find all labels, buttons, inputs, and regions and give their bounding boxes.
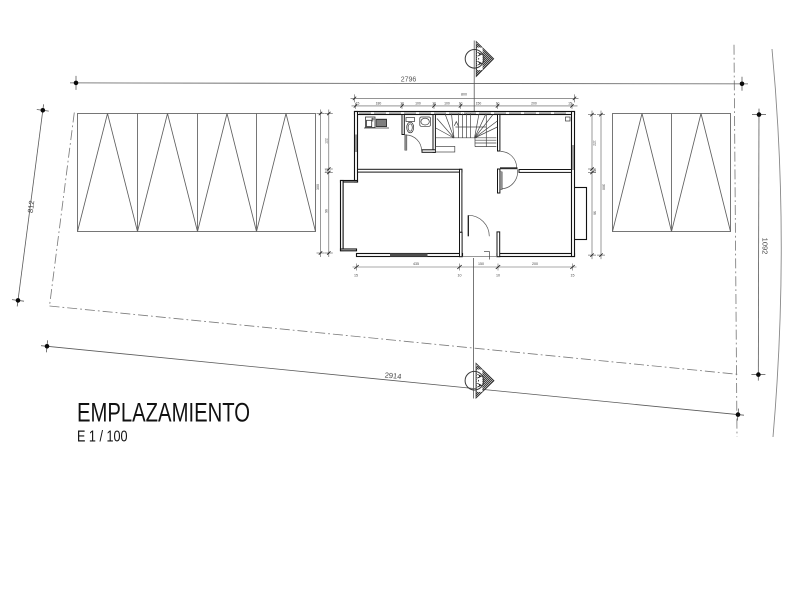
svg-text:2914: 2914 <box>384 371 401 382</box>
svg-text:10: 10 <box>324 169 328 173</box>
svg-text:180: 180 <box>376 102 382 106</box>
svg-text:435: 435 <box>413 262 419 266</box>
svg-text:122: 122 <box>324 138 328 144</box>
svg-text:800: 800 <box>461 92 467 96</box>
svg-text:15: 15 <box>354 274 358 278</box>
svg-text:1092: 1092 <box>761 238 770 255</box>
svg-text:10: 10 <box>458 274 462 278</box>
svg-text:200: 200 <box>532 262 538 266</box>
svg-text:2796: 2796 <box>401 77 417 84</box>
svg-text:96: 96 <box>324 209 328 213</box>
svg-text:E 1 / 100: E 1 / 100 <box>77 429 128 446</box>
svg-text:812: 812 <box>26 200 37 214</box>
svg-text:15: 15 <box>568 102 572 106</box>
svg-text:15: 15 <box>571 274 575 278</box>
svg-text:10: 10 <box>496 274 500 278</box>
svg-text:300: 300 <box>316 184 320 190</box>
svg-text:10: 10 <box>432 102 436 106</box>
svg-text:10: 10 <box>400 102 404 106</box>
svg-text:100: 100 <box>444 102 450 106</box>
svg-text:10: 10 <box>496 102 500 106</box>
svg-text:15: 15 <box>356 102 360 106</box>
svg-text:150: 150 <box>478 262 484 266</box>
svg-text:300: 300 <box>602 184 606 190</box>
svg-text:122: 122 <box>593 140 597 146</box>
svg-text:200: 200 <box>531 102 537 106</box>
svg-text:96: 96 <box>593 211 597 215</box>
svg-text:EMPLAZAMIENTO: EMPLAZAMIENTO <box>77 398 250 428</box>
svg-text:40: 40 <box>593 169 597 173</box>
svg-text:150: 150 <box>476 102 482 106</box>
svg-text:100: 100 <box>415 102 421 106</box>
svg-text:10: 10 <box>459 102 463 106</box>
